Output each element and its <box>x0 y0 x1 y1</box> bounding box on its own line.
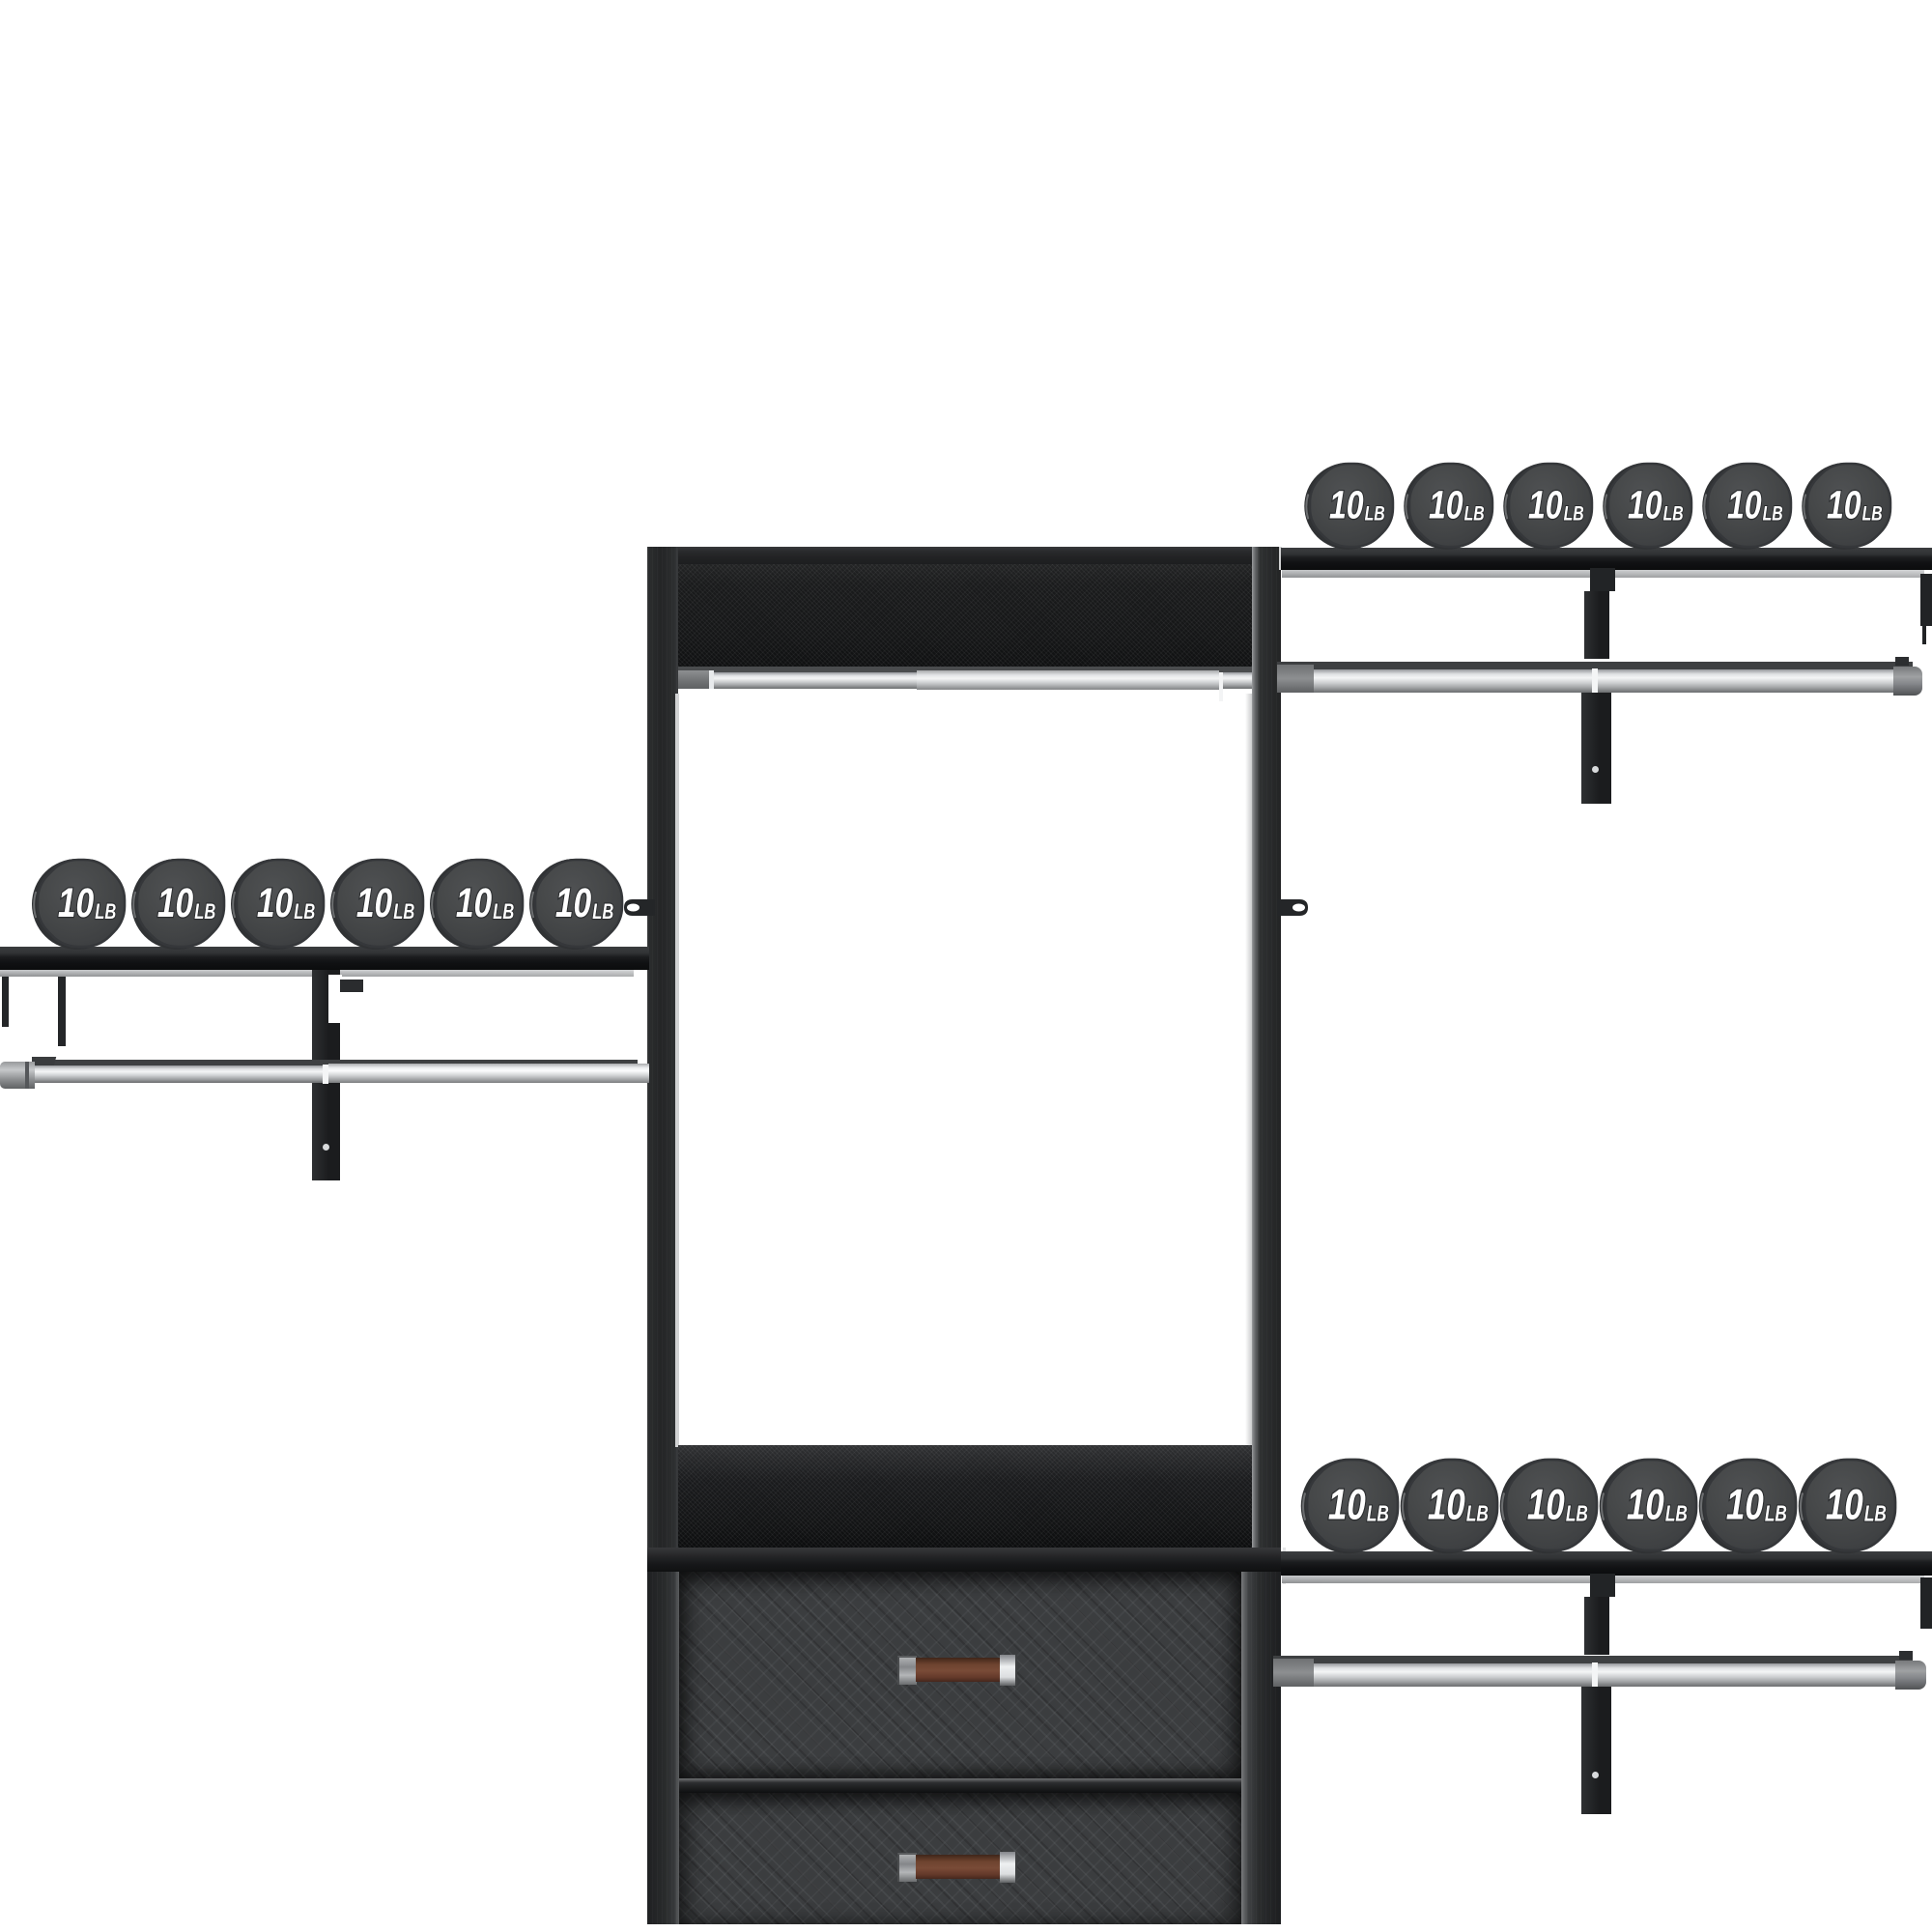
svg-text:10: 10 <box>257 880 294 926</box>
svg-text:LB: LB <box>1466 1502 1489 1526</box>
svg-text:LB: LB <box>1367 1502 1389 1526</box>
svg-text:LB: LB <box>1566 1502 1588 1526</box>
svg-text:LB: LB <box>294 900 315 924</box>
svg-text:LB: LB <box>1663 501 1684 525</box>
svg-text:LB: LB <box>1765 1502 1787 1526</box>
svg-text:10: 10 <box>1429 483 1463 527</box>
svg-text:10: 10 <box>157 880 194 926</box>
svg-text:10: 10 <box>1827 483 1861 527</box>
svg-text:10: 10 <box>1826 1480 1863 1528</box>
svg-text:LB: LB <box>592 900 613 924</box>
svg-text:10: 10 <box>1329 483 1364 527</box>
svg-text:10: 10 <box>1627 1480 1664 1528</box>
svg-text:10: 10 <box>1727 483 1762 527</box>
svg-text:10: 10 <box>1428 1480 1465 1528</box>
svg-text:10: 10 <box>58 880 95 926</box>
svg-text:LB: LB <box>1864 1502 1887 1526</box>
svg-text:10: 10 <box>356 880 393 926</box>
svg-text:10: 10 <box>1628 483 1662 527</box>
svg-text:LB: LB <box>1365 501 1385 525</box>
svg-text:LB: LB <box>95 900 116 924</box>
svg-text:10: 10 <box>1726 1480 1764 1528</box>
svg-text:10: 10 <box>1328 1480 1366 1528</box>
svg-text:10: 10 <box>1528 483 1563 527</box>
svg-text:10: 10 <box>1527 1480 1565 1528</box>
svg-text:LB: LB <box>1564 501 1584 525</box>
svg-text:10: 10 <box>555 880 592 926</box>
svg-text:LB: LB <box>1862 501 1883 525</box>
svg-text:LB: LB <box>493 900 514 924</box>
svg-text:10: 10 <box>456 880 493 926</box>
svg-text:LB: LB <box>194 900 215 924</box>
svg-text:LB: LB <box>1464 501 1485 525</box>
svg-text:LB: LB <box>393 900 414 924</box>
svg-text:LB: LB <box>1665 1502 1688 1526</box>
svg-text:LB: LB <box>1763 501 1783 525</box>
